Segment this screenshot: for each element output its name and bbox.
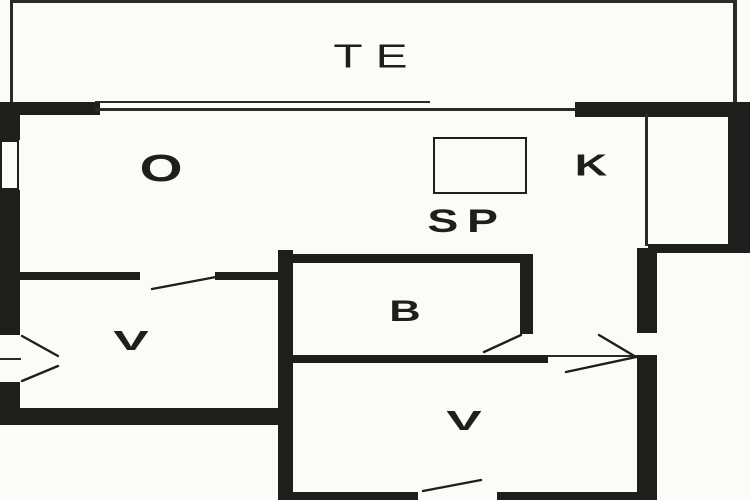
bottom-bedroom-door-swing <box>423 480 481 491</box>
bathroom-door-swing <box>484 335 521 352</box>
room-label-k: K <box>575 150 607 181</box>
side-entrance-door-swing-b <box>566 357 636 372</box>
room-label-b: B <box>389 297 420 327</box>
floor-plan: TE O K SP B V V <box>0 0 750 500</box>
room-label-v-left: V <box>113 327 149 355</box>
room-label-v-bottom: V <box>446 407 482 435</box>
main-entrance-door-swing-b <box>22 366 58 381</box>
room-label-o: O <box>140 150 183 188</box>
room-label-sp: SP <box>427 205 506 237</box>
room-label-terrace: TE <box>333 40 420 73</box>
left-bedroom-door-swing <box>152 277 216 289</box>
main-entrance-door-swing-a <box>22 336 58 356</box>
door-swing-lines <box>0 0 750 500</box>
side-entrance-door-swing-a <box>599 335 636 357</box>
